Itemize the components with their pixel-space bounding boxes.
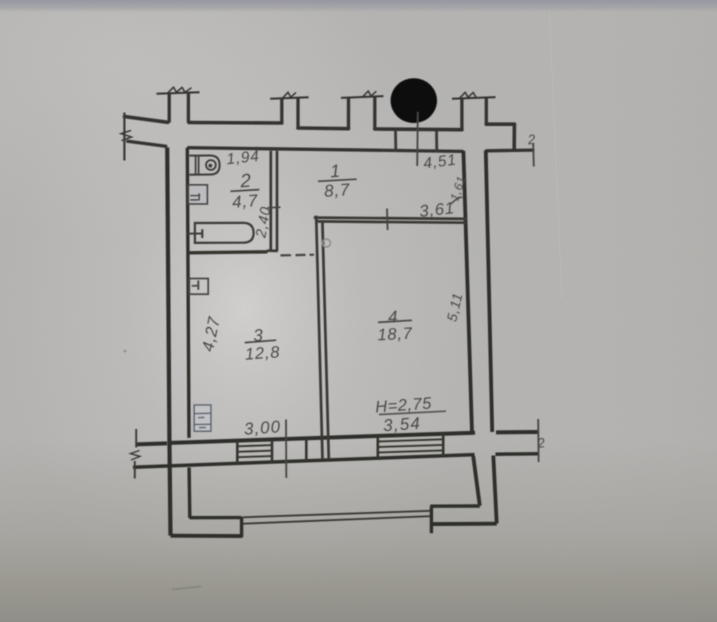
svg-text:12,8: 12,8 — [244, 343, 281, 363]
svg-text:1,94: 1,94 — [226, 148, 261, 168]
svg-text:4,7: 4,7 — [231, 191, 258, 212]
svg-text:2: 2 — [239, 171, 252, 193]
svg-text:3,61: 3,61 — [419, 199, 456, 221]
svg-text:3,00: 3,00 — [243, 417, 281, 439]
svg-text:8,7: 8,7 — [323, 180, 350, 201]
svg-text:1: 1 — [329, 161, 340, 182]
svg-text:18,7: 18,7 — [377, 325, 413, 345]
svg-text:3,54: 3,54 — [383, 414, 422, 436]
svg-text:4: 4 — [388, 307, 398, 326]
